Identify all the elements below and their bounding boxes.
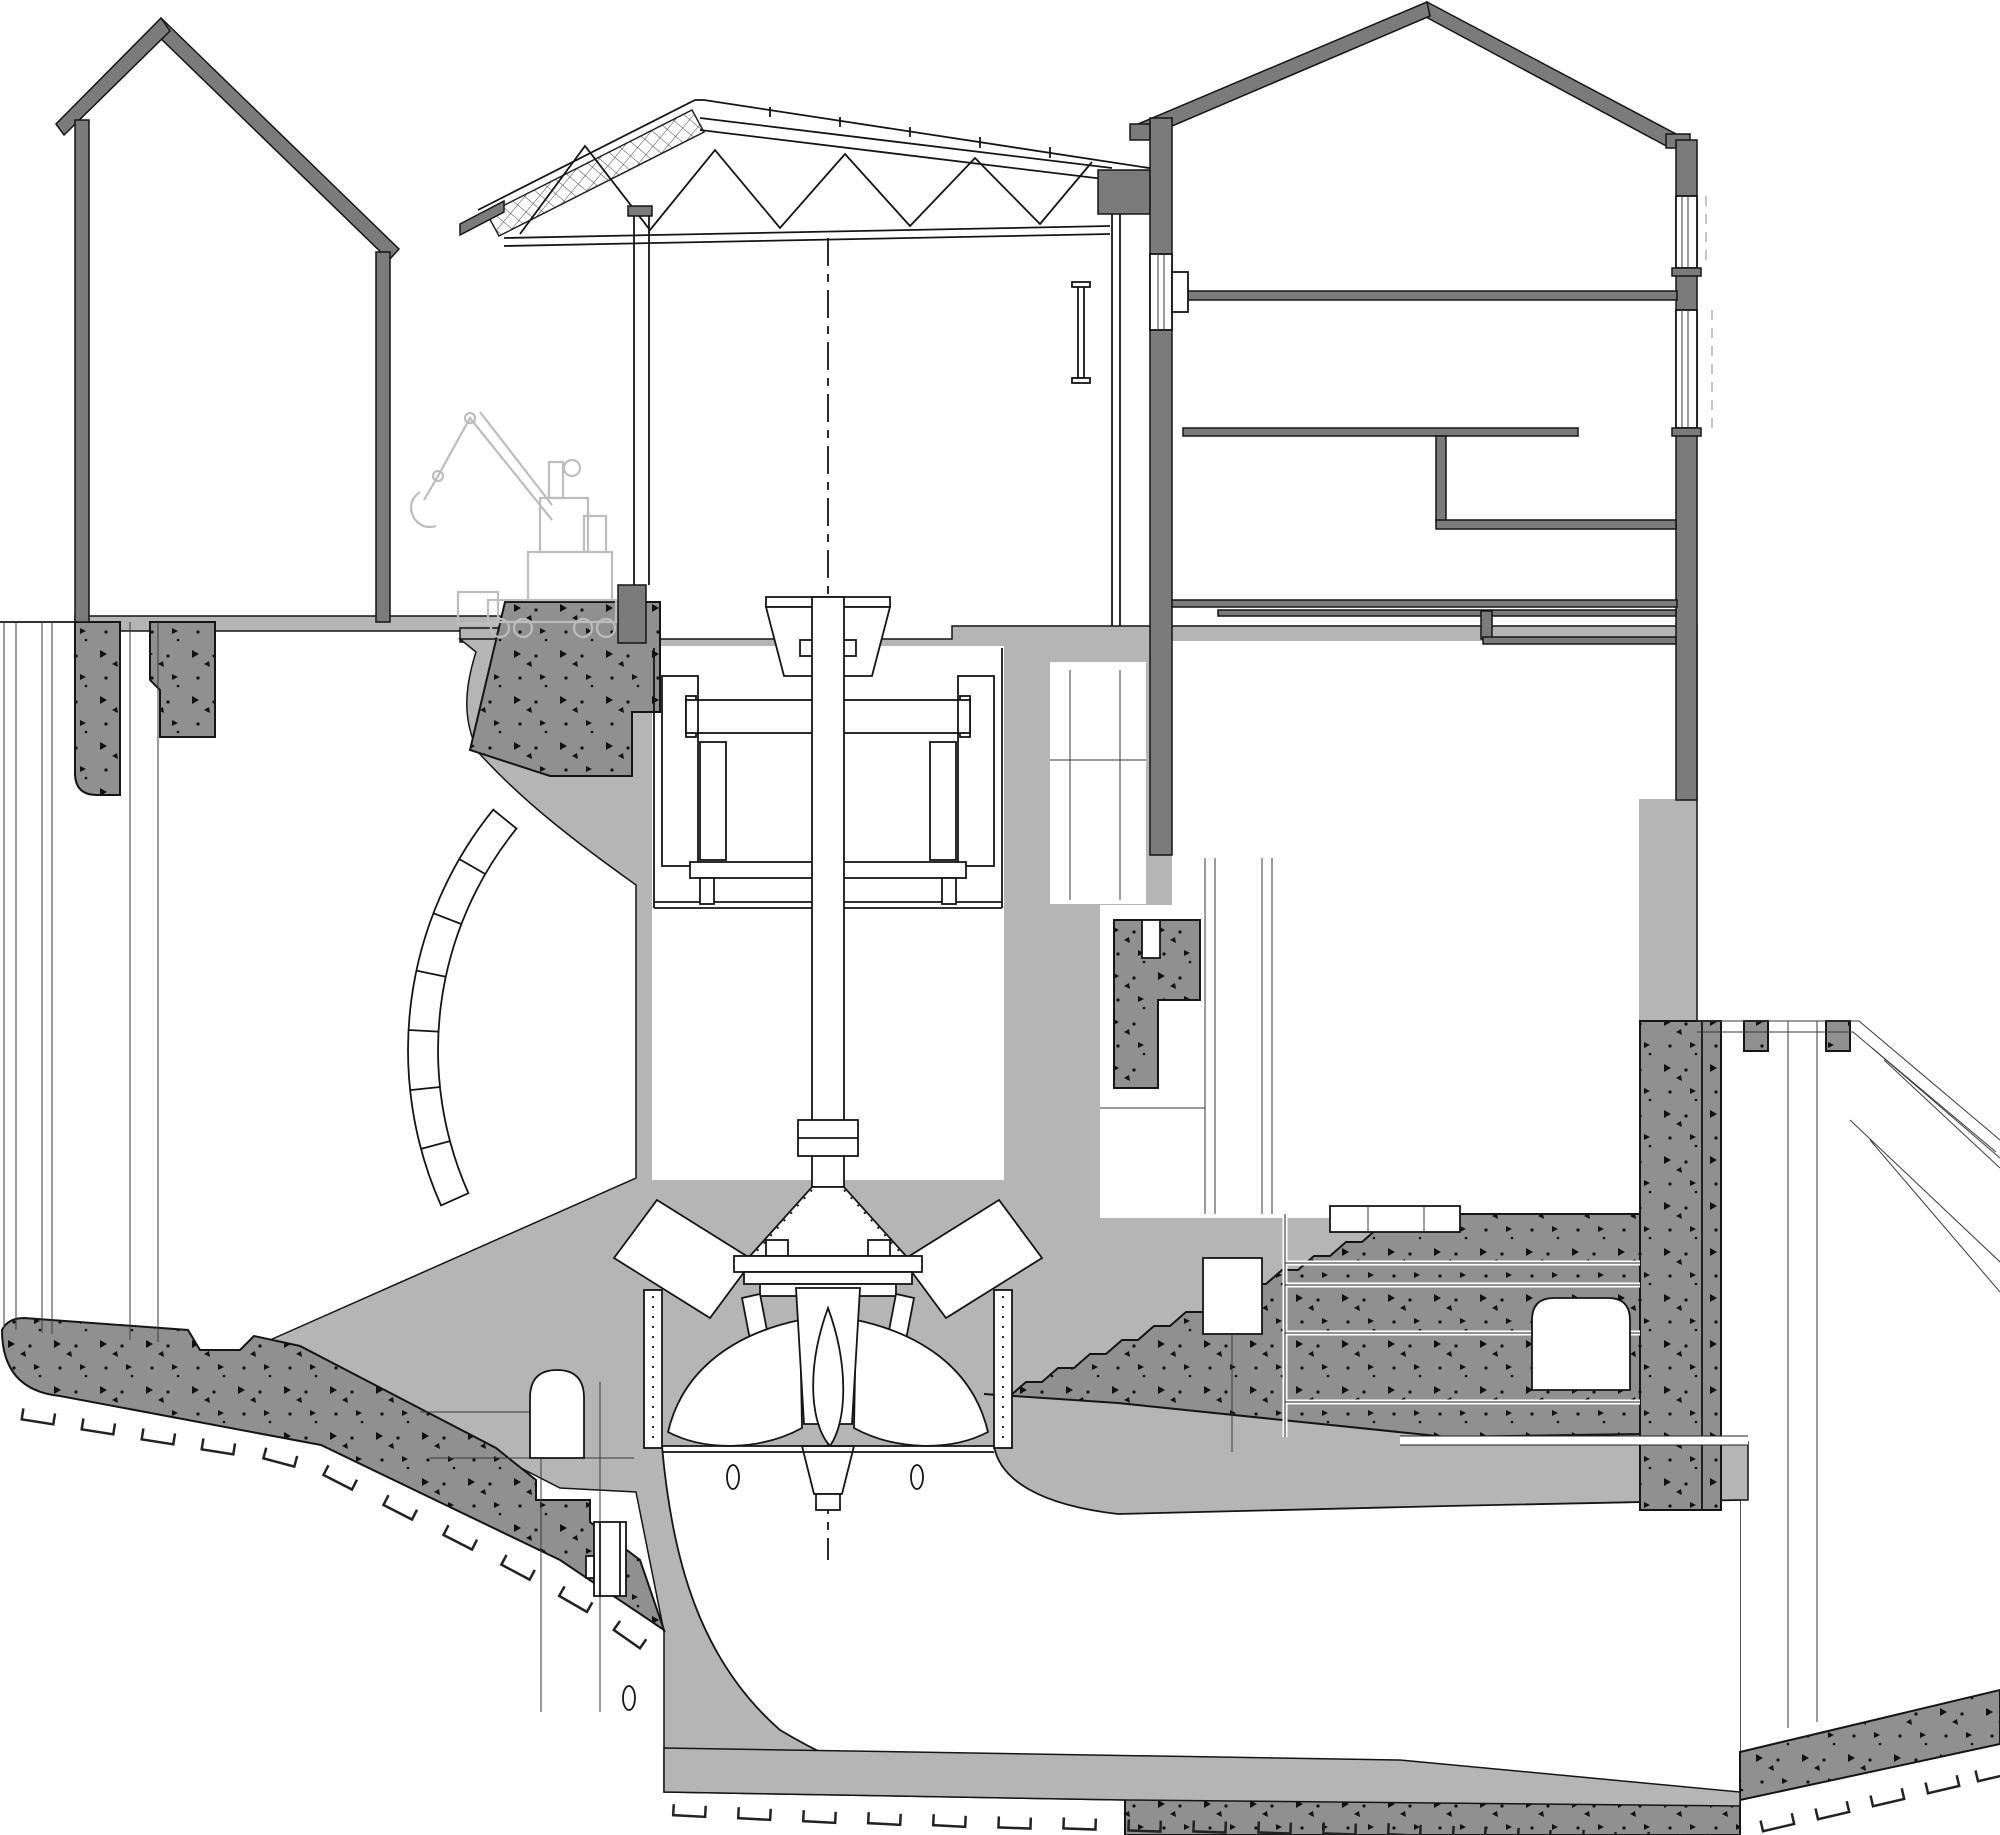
- window-right-lower: [1676, 310, 1697, 428]
- hall-column-base: [618, 585, 646, 643]
- hall-column-cap: [628, 206, 652, 216]
- side-room: [1050, 662, 1146, 904]
- window-left-wall: [1150, 254, 1172, 330]
- left-building: [0, 18, 399, 622]
- riverbank-band: [1740, 1690, 2000, 1800]
- roof-insulation-panel: [487, 110, 704, 236]
- ground-floor-slab-2: [1218, 610, 1676, 616]
- stator-core-right: [930, 742, 956, 860]
- stator-core-left: [700, 742, 726, 860]
- section-drawing: [0, 0, 2000, 1835]
- eave-left: [1130, 124, 1150, 140]
- anchor-block-1: [1744, 1021, 1768, 1051]
- landing-slab-2: [1483, 637, 1676, 644]
- access-arch: [530, 1370, 584, 1458]
- right-building-basement: [1172, 799, 1639, 1218]
- roof-purlins: [770, 107, 1050, 158]
- right-building-ground-floor: [1172, 641, 1677, 799]
- ground-floor-slab: [1172, 600, 1677, 607]
- roof-gutter-block: [1098, 170, 1150, 214]
- left-building-wall-left: [75, 120, 89, 622]
- landing-slab-1: [1436, 520, 1676, 529]
- mezzanine-slab: [1183, 428, 1578, 436]
- floor-post: [1481, 611, 1492, 639]
- drawing-canvas: [0, 0, 2000, 1835]
- discharge-ring-left: [644, 1290, 662, 1448]
- left-building-roof-left: [56, 18, 170, 135]
- anchor-block-2: [1826, 1021, 1850, 1051]
- left-pier-1: [75, 622, 120, 795]
- window-sill-1: [1672, 268, 1701, 276]
- truss-top-chord: [700, 118, 1112, 168]
- floor-joint-band: [1400, 1436, 1748, 1445]
- servo-right: [868, 1240, 890, 1256]
- machine-hall: [460, 100, 1162, 643]
- bracket-leg-left: [700, 878, 714, 904]
- hall-right-wall-lines: [1112, 214, 1120, 626]
- second-floor-slab: [1172, 291, 1677, 300]
- interior-wall: [1436, 436, 1446, 522]
- riverbank-right: [1697, 1021, 2000, 1728]
- window-right-upper: [1676, 196, 1697, 268]
- head-cover-2: [744, 1272, 912, 1284]
- wall-slot: [1142, 920, 1160, 958]
- left-building-roof-right: [154, 18, 399, 260]
- servo-left: [766, 1240, 788, 1256]
- concrete-monolith: [75, 616, 1748, 1806]
- hall-left-column: [634, 214, 649, 585]
- discharge-ring-right: [994, 1290, 1012, 1448]
- head-cover: [734, 1256, 922, 1272]
- manhole-right: [911, 1465, 923, 1489]
- right-building-roof-right: [1424, 2, 1676, 148]
- right-building-roof-left: [1138, 2, 1430, 138]
- left-building-wall-right: [376, 252, 390, 622]
- main-shaft: [812, 597, 844, 1187]
- manhole-lower: [623, 1686, 635, 1710]
- basement-door: [1203, 1258, 1262, 1334]
- cone-tip: [816, 1494, 840, 1510]
- segmented-arc-wall: [408, 810, 516, 1206]
- drainage-gallery: [1532, 1298, 1630, 1390]
- manhole-left: [727, 1465, 739, 1489]
- left-pier-2: [150, 622, 215, 737]
- wall-niche: [1172, 272, 1188, 312]
- tailrace-beam: [1330, 1206, 1460, 1232]
- bracket-leg-right: [942, 878, 956, 904]
- crane-rail-column: [1072, 282, 1090, 383]
- window-sill-2: [1672, 428, 1701, 436]
- right-building-wall-left: [1150, 118, 1172, 855]
